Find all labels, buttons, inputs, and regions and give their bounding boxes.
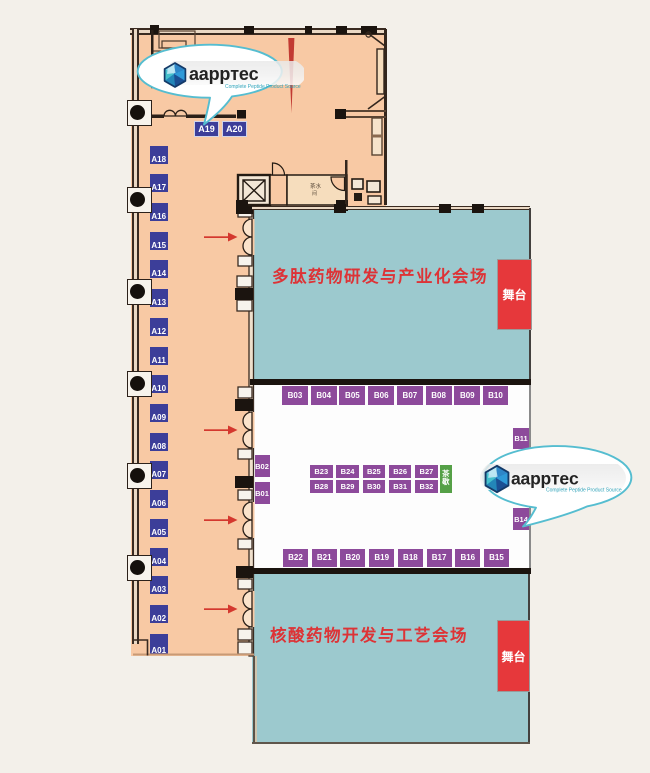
svg-text:Complete Peptide Product Sourc: Complete Peptide Product Source — [546, 488, 622, 494]
svg-text:Complete Peptide Product Sourc: Complete Peptide Product Source — [225, 84, 301, 90]
svg-text:aappтec: aappтec — [511, 469, 579, 489]
svg-text:aappтec: aappтec — [189, 64, 259, 84]
